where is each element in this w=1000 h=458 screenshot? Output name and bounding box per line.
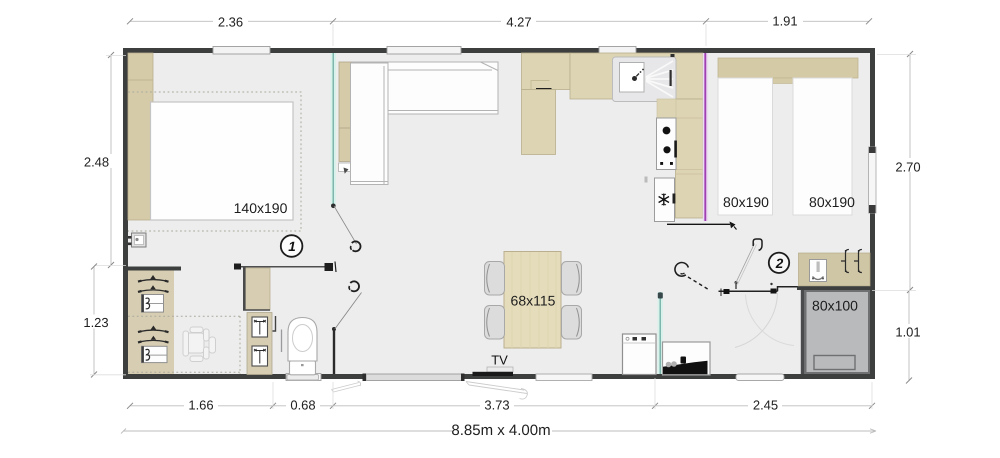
svg-text:1.01: 1.01 [895,324,920,339]
svg-text:4.27: 4.27 [506,14,531,29]
svg-text:1.91: 1.91 [772,13,797,28]
svg-text:1.66: 1.66 [188,398,213,413]
svg-text:1: 1 [288,239,296,254]
svg-text:68x115: 68x115 [511,292,556,308]
svg-text:TV: TV [491,352,508,367]
svg-text:2.48: 2.48 [84,154,109,169]
svg-text:80x190: 80x190 [809,194,855,210]
svg-text:80x100: 80x100 [812,297,858,313]
svg-text:1.23: 1.23 [83,315,108,330]
svg-text:3.73: 3.73 [484,398,509,413]
svg-text:80x190: 80x190 [723,194,769,210]
svg-text:2: 2 [775,256,784,271]
svg-text:0.68: 0.68 [290,398,315,413]
svg-text:2.70: 2.70 [895,159,920,174]
svg-text:2.45: 2.45 [753,398,778,413]
svg-text:8.85m x 4.00m: 8.85m x 4.00m [451,422,550,439]
svg-text:2.36: 2.36 [218,14,243,29]
svg-text:140x190: 140x190 [234,200,288,216]
